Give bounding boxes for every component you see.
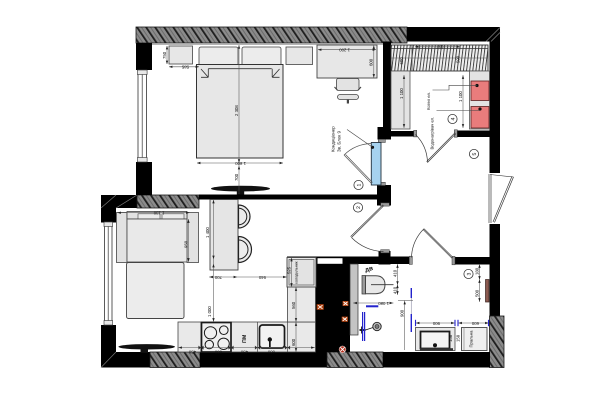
svg-text:3: 3: [466, 272, 472, 275]
svg-text:697: 697: [436, 45, 444, 50]
svg-text:750: 750: [162, 51, 167, 59]
svg-text:158: 158: [456, 334, 461, 342]
svg-text:950: 950: [184, 240, 189, 248]
svg-text:600: 600: [214, 349, 222, 354]
svg-text:Пральна: Пральна: [469, 330, 474, 348]
svg-text:700: 700: [214, 275, 222, 280]
svg-text:1 100: 1 100: [399, 88, 404, 99]
svg-text:158: 158: [448, 334, 453, 342]
svg-text:1 080: 1 080: [378, 301, 389, 306]
svg-text:2 308: 2 308: [234, 105, 239, 116]
svg-text:1: 1: [356, 183, 362, 186]
svg-text:585: 585: [181, 65, 189, 70]
svg-text:450: 450: [240, 349, 248, 354]
svg-text:590: 590: [455, 55, 460, 63]
svg-text:600: 600: [471, 321, 479, 326]
svg-text:600: 600: [291, 338, 296, 346]
svg-text:Зв. Блок 9: Зв. Блок 9: [337, 131, 342, 152]
svg-text:2: 2: [356, 206, 362, 209]
svg-text:1 800: 1 800: [235, 161, 246, 166]
svg-text:1 400: 1 400: [205, 227, 210, 238]
svg-text:5: 5: [472, 152, 478, 155]
svg-text:1 200: 1 200: [339, 47, 350, 52]
svg-text:600: 600: [267, 349, 275, 354]
svg-text:Котел ел.: Котел ел.: [426, 92, 431, 110]
svg-text:ПМ: ПМ: [242, 334, 248, 343]
svg-text:1 100: 1 100: [458, 91, 463, 102]
svg-text:180: 180: [474, 267, 479, 275]
svg-text:Кондиціонер: Кондиціонер: [331, 126, 336, 152]
svg-text:900: 900: [399, 309, 404, 317]
svg-text:940: 940: [258, 275, 266, 280]
svg-text:холодильник: холодильник: [295, 261, 299, 284]
svg-text:1 130: 1 130: [153, 211, 164, 216]
svg-text:560: 560: [291, 301, 296, 309]
svg-text:700: 700: [234, 173, 239, 181]
svg-text:500: 500: [474, 289, 479, 297]
svg-text:900: 900: [432, 321, 440, 326]
svg-text:450: 450: [188, 349, 196, 354]
svg-text:4: 4: [450, 117, 456, 120]
svg-text:1 000: 1 000: [207, 306, 212, 317]
svg-text:600: 600: [399, 57, 404, 65]
svg-text:600: 600: [369, 58, 374, 66]
svg-text:525: 525: [287, 266, 292, 274]
svg-text:410: 410: [392, 286, 397, 294]
svg-text:410: 410: [392, 269, 397, 277]
svg-text:Водонагрівач ел.: Водонагрівач ел.: [429, 117, 434, 150]
